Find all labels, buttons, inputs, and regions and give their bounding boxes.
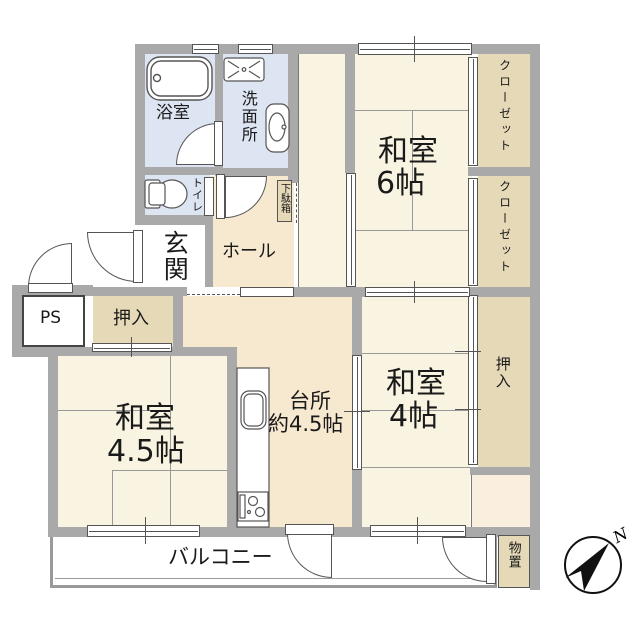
room-label-washitsu-45: 和室 xyxy=(115,403,175,435)
room-label-balcony: バルコニー xyxy=(168,546,273,568)
room-label-oshiire-right: 押入 xyxy=(494,356,510,390)
washing-machine-pan xyxy=(224,58,264,81)
room-label-toilet: トイレ xyxy=(191,177,203,213)
room-label-washroom: 洗面所 xyxy=(239,90,256,144)
floor-plan: 浴室 洗面所 トイレ 玄関 ホール 下駄箱 PS 押入 和室 6帖 クローゼット… xyxy=(0,0,640,640)
room-label-washitsu-4: 和室 xyxy=(386,368,446,400)
room-label-washitsu-6: 和室 xyxy=(378,136,438,168)
wash-basin xyxy=(266,104,289,152)
kitchen-sink xyxy=(241,391,266,429)
room-size-kitchen: 約4.5帖 xyxy=(268,413,343,435)
room-label-storage: 物置 xyxy=(506,541,520,569)
room-label-hall: ホール xyxy=(222,243,276,262)
toilet-fixture xyxy=(145,180,187,208)
room-size-washitsu-4: 4帖 xyxy=(389,401,438,433)
room-label-entrance: 玄関 xyxy=(161,230,187,282)
fixtures-layer xyxy=(0,0,640,640)
room-size-washitsu-45: 4.5帖 xyxy=(107,436,185,468)
room-size-washitsu-6: 6帖 xyxy=(376,168,425,200)
room-label-bath: 浴室 xyxy=(156,105,190,123)
stove xyxy=(238,492,268,521)
room-label-closet-upper: クローゼット xyxy=(498,59,511,155)
room-label-closet-lower: クローゼット xyxy=(498,180,511,276)
bathtub xyxy=(147,57,212,100)
room-label-shoe-cabinet: 下駄箱 xyxy=(278,183,289,213)
room-label-oshiire-left: 押入 xyxy=(113,310,149,329)
room-label-kitchen: 台所 xyxy=(289,390,331,412)
room-label-ps: PS xyxy=(40,310,61,328)
compass: N xyxy=(556,526,636,606)
